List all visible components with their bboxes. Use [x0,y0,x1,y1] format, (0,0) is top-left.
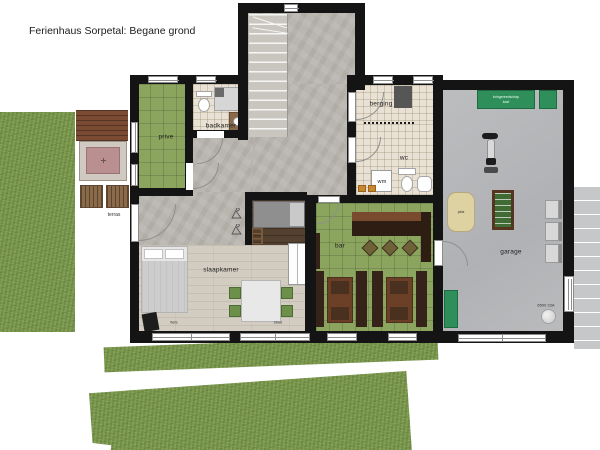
folding-chair-back [559,200,562,219]
wc-door [348,137,356,163]
toilet [196,91,212,97]
booth-bench [416,271,427,327]
folding-chair [545,244,559,263]
hanger-icon [231,208,242,221]
window [148,76,178,83]
storage-box [358,185,366,192]
window [458,334,546,342]
booth-seat [390,307,408,320]
bunk-pillow [290,203,304,226]
wall [130,188,193,196]
wall [433,80,443,331]
prive-door [186,163,193,190]
bedroom-tiny-label-right: stoel [274,320,282,325]
window [196,76,216,83]
front-door [131,204,139,242]
room-label-bar: bar [335,243,345,250]
driveway [574,186,600,349]
chair [229,305,241,317]
window [413,76,433,84]
chair [281,305,293,317]
wm-label: wm [378,179,387,185]
bed-blanket [142,261,187,312]
room-label-berging: berging [369,101,392,108]
window [131,164,138,186]
terrace-bench-left [80,185,103,208]
grass-left-strip [0,112,75,332]
garage-green-mat [444,290,458,328]
hot-tub-cross [101,158,106,163]
bedside-bench [142,312,160,332]
booth-bench [356,271,367,327]
bedroom-tiny-label-left: fiets [170,320,177,325]
folding-chair-back [559,244,562,263]
hanger-icon [231,224,242,237]
shower-column [215,88,224,97]
booth-bench [372,271,383,327]
garage-cabinet-wide: tuingereedschap kast [477,90,535,109]
booth-seat [390,281,408,294]
window [240,333,310,341]
window [373,76,393,84]
room-label-slaapkamer: slaapkamer [203,267,239,274]
room-label-badkamer: badkamer [206,123,237,130]
bar-counter [352,221,430,236]
floor-plan-canvas: terras [0,0,600,450]
wall [433,80,574,90]
booth-seat [331,307,349,320]
bed-pillow-left [144,249,163,259]
window [152,333,230,341]
booth-seat [331,281,349,294]
storage-box [368,185,376,192]
window [388,333,417,341]
folding-chair-back [559,222,562,241]
berging-door [348,92,356,122]
window [284,4,298,12]
toilet [398,168,416,175]
toilet-bowl [401,176,413,192]
bar-door [318,196,340,203]
doormat [394,86,412,108]
toilet-bowl [198,98,210,112]
bar-counter-top [352,212,430,221]
garage-corner-label: 6500 23A [537,303,554,308]
badkamer-door [197,131,224,138]
window [131,122,138,153]
wall [238,3,248,140]
wardrobe-divider [297,244,298,284]
ball [541,309,556,324]
folding-chair [545,222,559,241]
wall [238,3,365,13]
cabinet-text-line2: kast [478,100,534,105]
bedroom-table [241,280,281,322]
garage-door [564,276,574,312]
terrace-label: terras [108,212,121,218]
threshold-dots [364,122,414,124]
terrace-bench-right [106,185,129,208]
bunk-ladder [251,228,263,244]
wall [305,195,316,331]
bar-counter-return [421,212,431,262]
chair [229,287,241,299]
beanbag-label: pela [458,210,465,214]
bed-pillow-right [165,249,184,259]
room-label-prive: prive [158,134,173,141]
base [484,167,498,173]
chair [281,287,293,299]
garage-cabinet-small [539,90,557,109]
wall [245,192,307,200]
room-label-wc: wc [400,155,408,162]
sink [417,176,432,192]
foosball-table [492,190,514,230]
exercise-equipment [479,131,503,175]
wall [245,192,252,245]
page-title: Ferienhaus Sorpetal: Begane grond [29,25,195,37]
wood-deck [76,110,128,141]
room-label-garage: garage [500,249,521,256]
bar-garage-door [434,240,443,266]
window [327,333,357,341]
seat [486,158,496,165]
folding-chair [545,200,559,219]
